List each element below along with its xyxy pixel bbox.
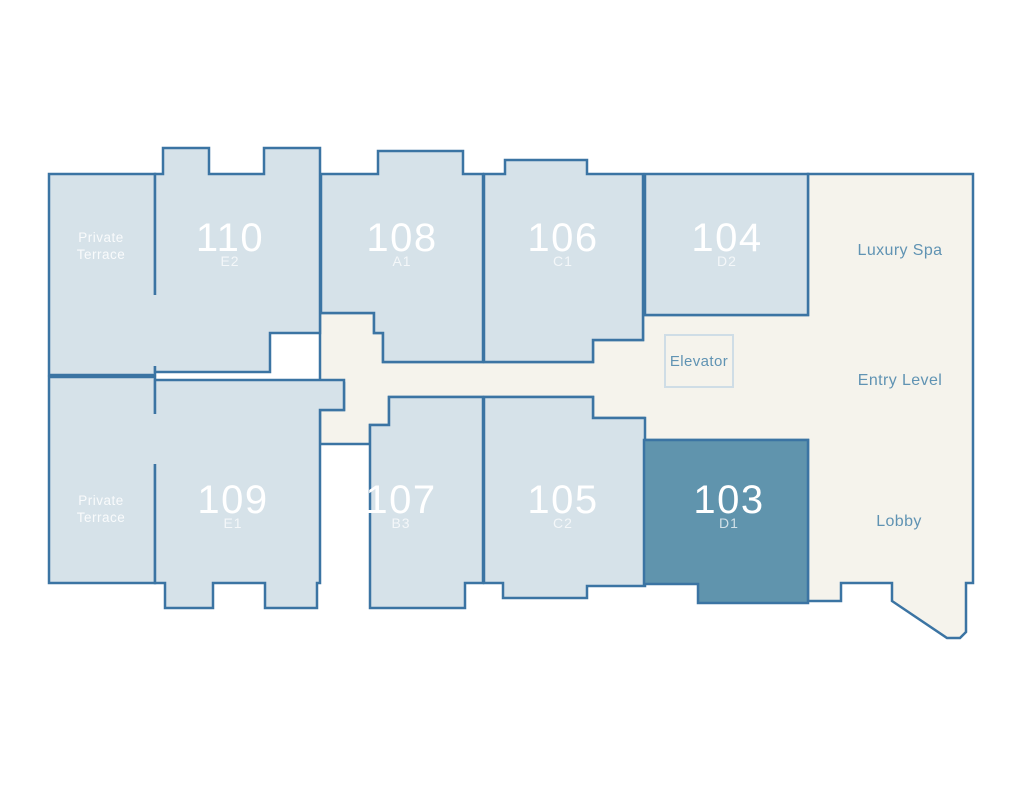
elevator-label: Elevator xyxy=(670,353,728,370)
svg-text:Private: Private xyxy=(78,493,124,508)
entry-level-label: Entry Level xyxy=(858,372,942,389)
unit-105-code: C2 xyxy=(553,515,573,531)
lobby-label: Lobby xyxy=(876,513,922,530)
unit-106-code: C1 xyxy=(553,253,573,269)
unit-108-code: A1 xyxy=(392,253,411,269)
unit-107-code: B3 xyxy=(391,515,410,531)
unit-109-code: E1 xyxy=(223,515,242,531)
door-gap-terrace-top xyxy=(151,295,159,366)
svg-text:Terrace: Terrace xyxy=(77,247,126,262)
svg-text:Private: Private xyxy=(78,230,124,245)
svg-text:Terrace: Terrace xyxy=(77,510,126,525)
unit-104-code: D2 xyxy=(717,253,737,269)
private-terrace-bottom-shape[interactable] xyxy=(49,377,155,583)
luxury-spa-label: Luxury Spa xyxy=(858,242,943,259)
floor-plan: Elevator Private Terrace Private Terrace… xyxy=(0,0,1024,791)
door-gap-terrace-bottom xyxy=(151,414,159,464)
unit-110-code: E2 xyxy=(220,253,239,269)
private-terrace-top-shape[interactable] xyxy=(49,174,155,375)
unit-103-code: D1 xyxy=(719,515,739,531)
